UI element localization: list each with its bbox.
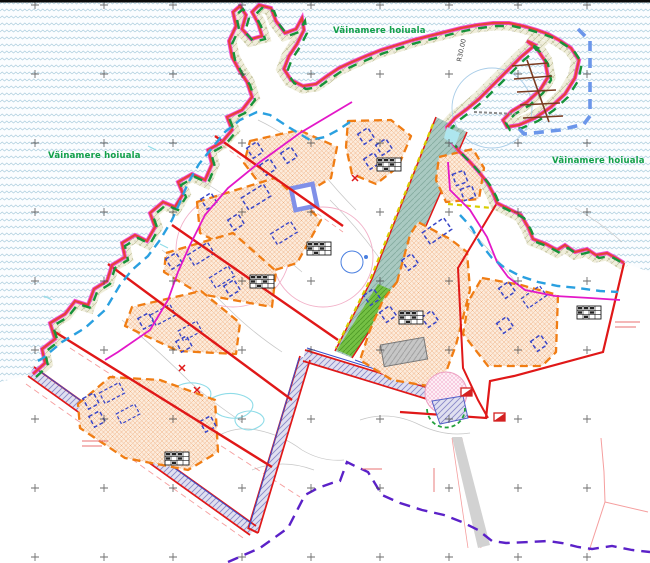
window-top-edge (0, 0, 650, 3)
slipway-icon (494, 413, 505, 421)
site-plan-drawing: Väinamere hoiuala Väinamere hoiuala Väin… (0, 0, 650, 563)
plan-map-canvas: Väinamere hoiuala Väinamere hoiuala Väin… (0, 0, 650, 563)
envelope-harbour (436, 149, 484, 202)
protected-area-label-right: Väinamere hoiuala (552, 156, 645, 166)
protected-area-label-left: Väinamere hoiuala (48, 151, 141, 161)
slipway-icon (461, 388, 472, 396)
protected-area-label-top: Väinamere hoiuala (333, 26, 426, 36)
